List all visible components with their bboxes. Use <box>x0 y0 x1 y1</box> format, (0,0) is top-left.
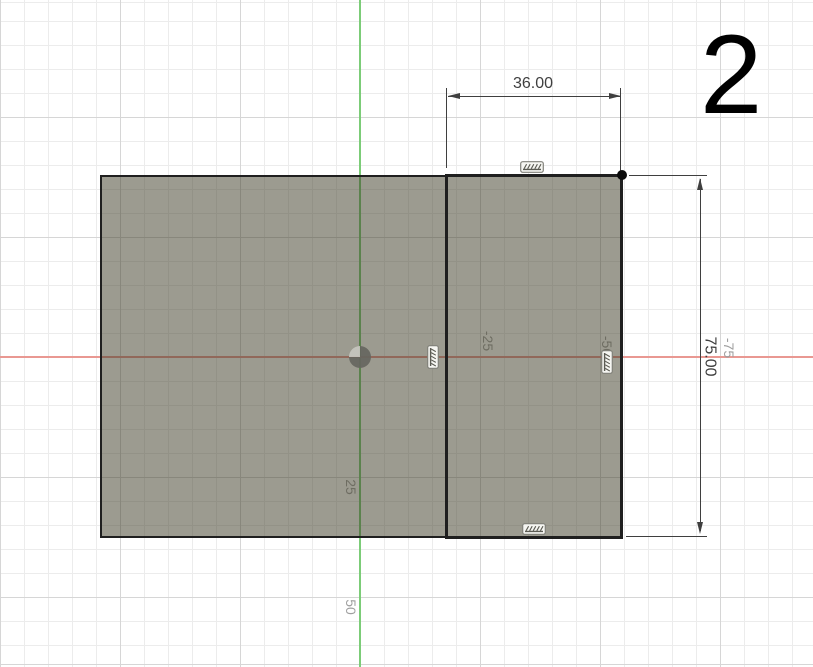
constraint-icon-top[interactable] <box>520 160 544 172</box>
step-number: 2 <box>700 19 762 131</box>
width-dim-arrow-right <box>609 93 621 99</box>
grid-label-x-neg-25: -25 <box>480 319 496 363</box>
width-dim-extension-left <box>446 88 447 168</box>
height-dim-value[interactable]: 75.00 <box>702 324 719 390</box>
height-dim-arrow-down <box>697 522 703 534</box>
origin-point-icon[interactable] <box>349 346 371 368</box>
width-dim-extension-right <box>620 88 621 172</box>
grid-label-y-25: 25 <box>343 465 359 509</box>
sketch-profile-right[interactable] <box>445 174 623 539</box>
width-dim-value[interactable]: 36.00 <box>503 75 563 92</box>
height-dim-extension-top <box>629 175 707 176</box>
constraint-icon-middle[interactable] <box>428 345 440 369</box>
constraint-icon-bottom[interactable] <box>522 522 546 534</box>
width-dim-line <box>448 96 620 97</box>
width-dim-arrow-left <box>448 93 460 99</box>
height-dim-arrow-up <box>697 178 703 190</box>
vertex-point[interactable] <box>617 170 627 180</box>
height-dim-extension-bottom <box>626 536 707 537</box>
grid-label-x-neg-75: -75 <box>721 326 737 370</box>
grid-label-y-50: 50 <box>343 585 359 629</box>
constraint-icon-right[interactable] <box>602 350 614 374</box>
sketch-canvas: -25 -50 -75 25 50 36.00 75.00 <box>0 0 813 667</box>
